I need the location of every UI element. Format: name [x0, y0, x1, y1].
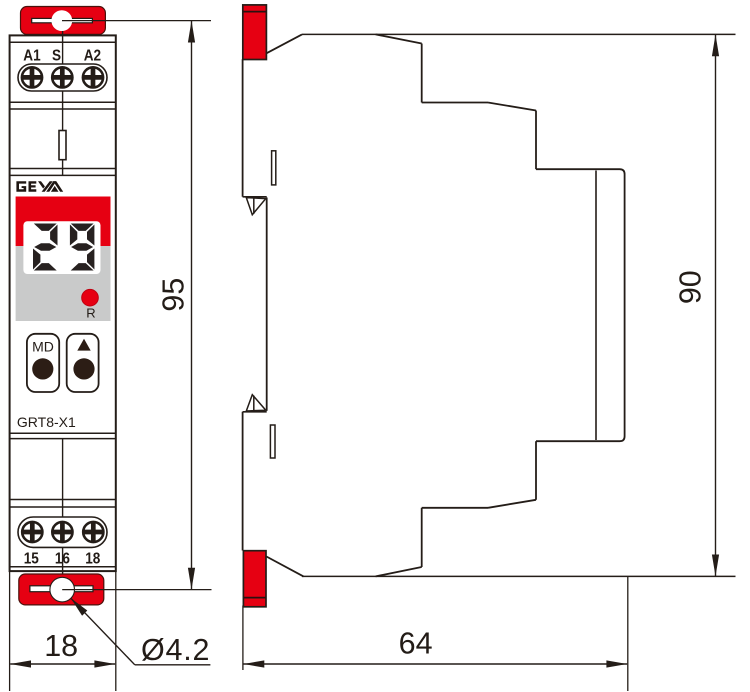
svg-text:A2: A2	[84, 48, 101, 65]
svg-text:GRT8-X1: GRT8-X1	[17, 414, 76, 430]
svg-text:R: R	[86, 306, 95, 321]
svg-text:S: S	[52, 48, 61, 65]
svg-text:A1: A1	[23, 48, 40, 65]
svg-text:Ø4.2: Ø4.2	[141, 633, 210, 667]
svg-text:64: 64	[399, 627, 433, 661]
svg-text:18: 18	[85, 551, 100, 568]
svg-text:16: 16	[55, 551, 70, 568]
svg-text:15: 15	[24, 551, 39, 568]
svg-text:95: 95	[156, 278, 190, 312]
svg-text:90: 90	[673, 270, 707, 304]
svg-text:MD: MD	[32, 339, 54, 355]
svg-text:18: 18	[44, 629, 78, 663]
